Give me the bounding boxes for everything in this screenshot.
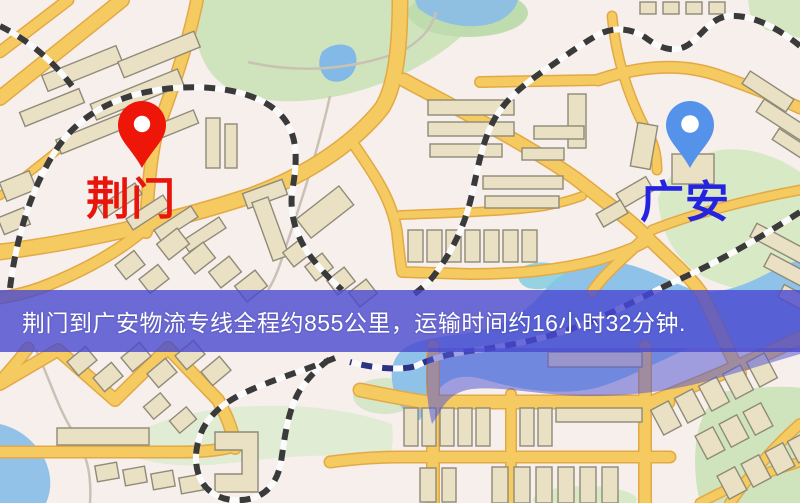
building: [428, 122, 514, 136]
city-label-guangan: 广安: [640, 181, 730, 225]
building: [580, 467, 596, 503]
building: [536, 467, 552, 503]
building: [95, 462, 119, 482]
building: [485, 196, 559, 208]
building: [209, 256, 242, 288]
building: [522, 148, 564, 160]
building: [442, 468, 456, 502]
building: [20, 89, 85, 127]
building: [404, 408, 418, 446]
building: [534, 126, 584, 139]
building: [143, 393, 170, 419]
building: [465, 230, 480, 262]
road: [480, 80, 600, 82]
building: [484, 230, 499, 262]
building: [503, 230, 518, 262]
building: [427, 230, 442, 262]
building: [558, 467, 574, 503]
road: [330, 457, 670, 462]
building: [206, 118, 220, 168]
building: [709, 2, 725, 14]
building: [458, 408, 472, 446]
building: [225, 124, 237, 168]
building: [476, 408, 490, 446]
building: [686, 2, 702, 14]
building: [483, 176, 563, 189]
building: [430, 144, 502, 157]
route-info-text: 荆门到广安物流专线全程约855公里，运输时间约16小时32分钟.: [0, 304, 686, 338]
map-canvas: [0, 0, 800, 503]
building: [440, 408, 454, 446]
building: [640, 2, 656, 14]
building: [420, 468, 436, 502]
building: [57, 428, 149, 445]
building: [522, 230, 537, 262]
building: [123, 466, 147, 486]
building: [514, 467, 530, 503]
route-info-banner: 荆门到广安物流专线全程约855公里，运输时间约16小时32分钟.: [0, 290, 800, 352]
building: [296, 186, 353, 238]
building: [408, 230, 423, 262]
building: [538, 408, 552, 446]
building: [556, 408, 642, 422]
building: [151, 470, 175, 490]
city-label-jingmen: 荆门: [86, 178, 176, 222]
building: [663, 2, 679, 14]
building: [568, 94, 586, 148]
map-screenshot: 荆门到广安物流专线全程约855公里，运输时间约16小时32分钟. 荆门 广安: [0, 0, 800, 503]
building: [602, 467, 618, 503]
water-corner: [0, 424, 50, 503]
building: [492, 467, 508, 503]
building: [520, 408, 534, 446]
